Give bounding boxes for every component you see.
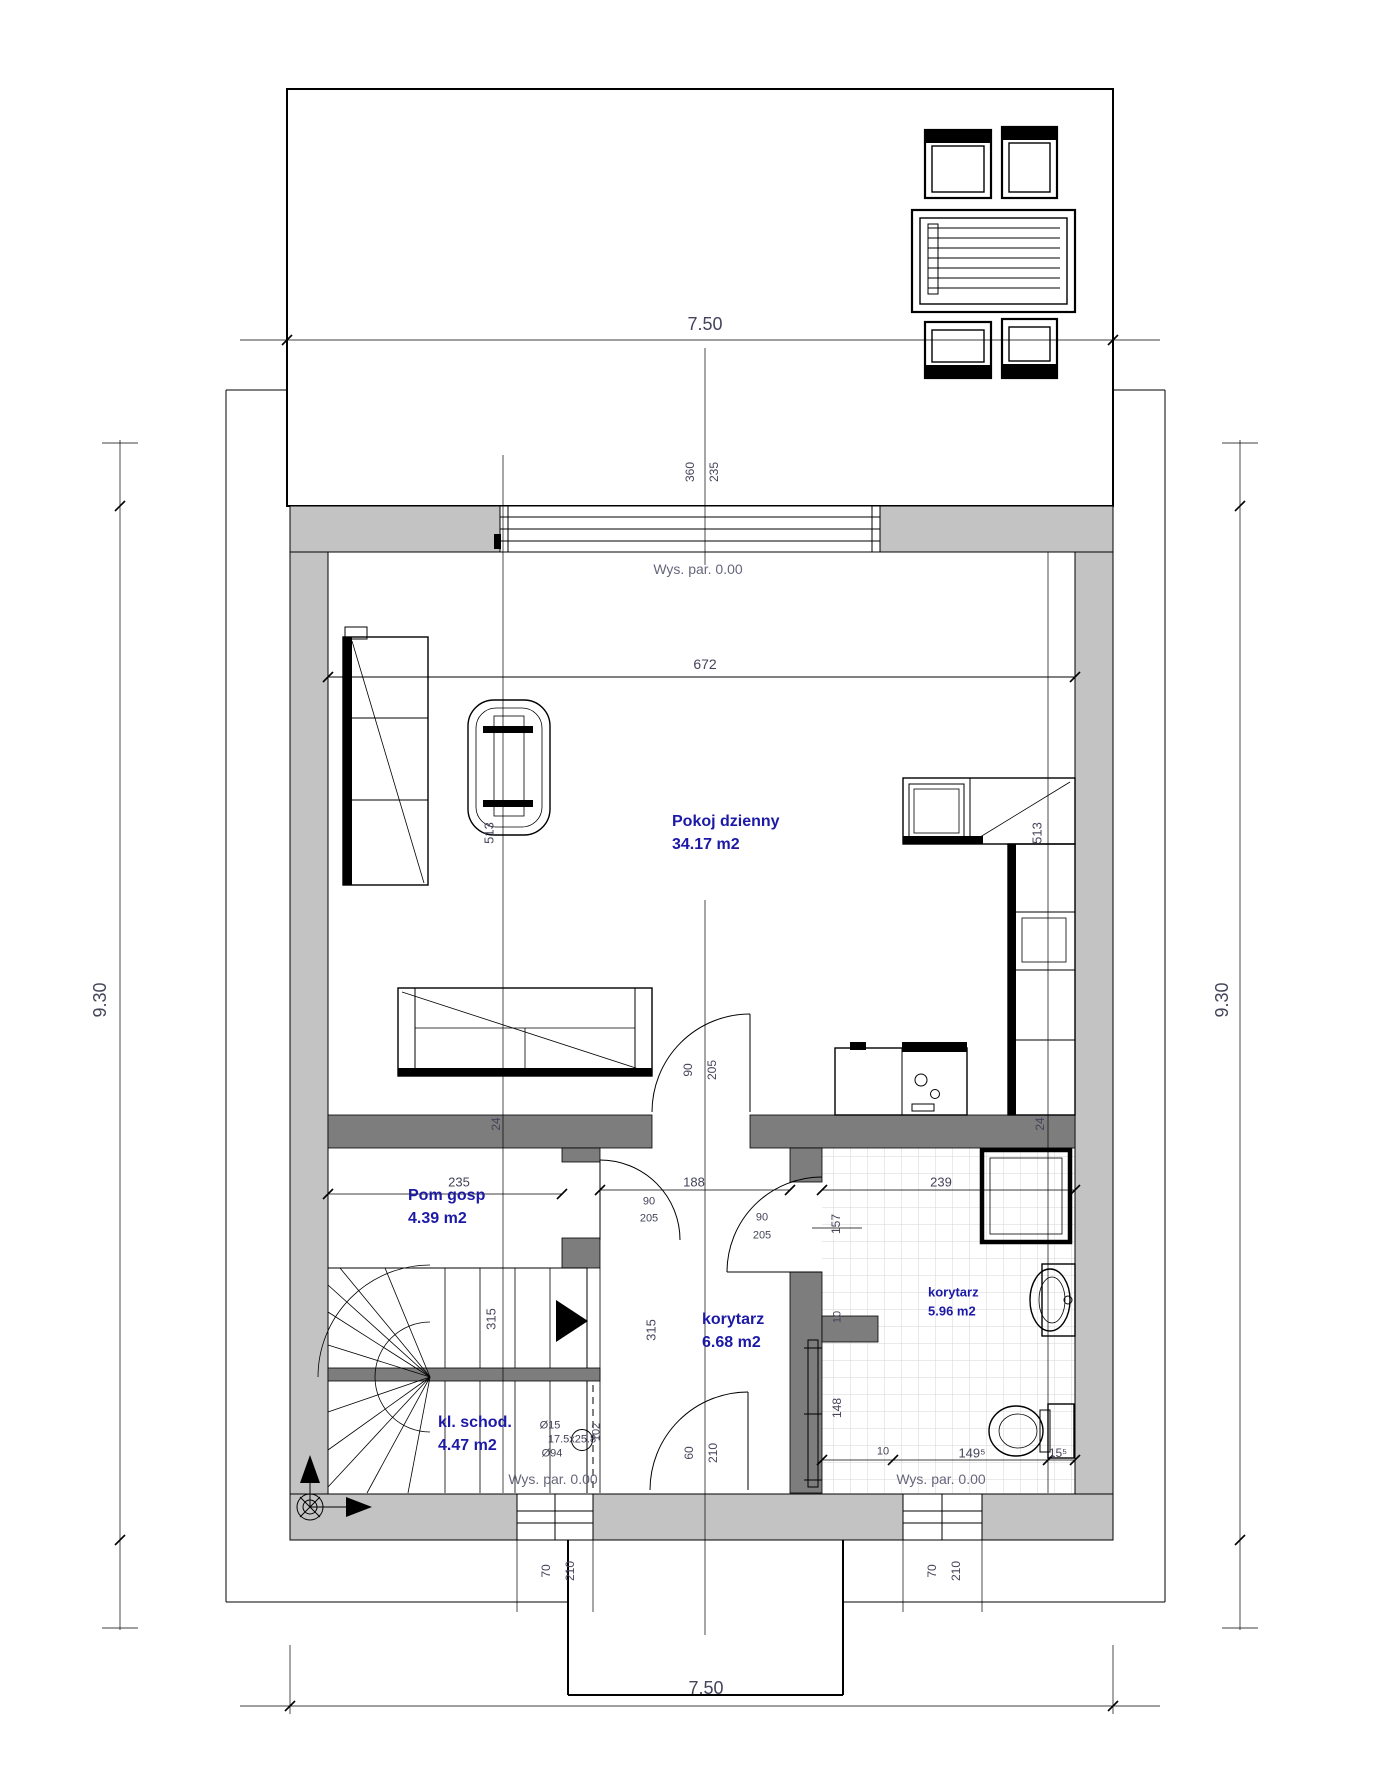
dimension-label: 7.50 [688,1679,723,1697]
dimension-label: 60 [683,1446,695,1459]
entrance-porch [568,1540,843,1695]
dimension-label: 157 [830,1214,842,1234]
door-arc [727,1177,822,1272]
room-label-name: korytarz [928,1285,979,1300]
kitchen-counter [903,778,1075,1115]
floor-plan-linework [0,0,1394,1775]
garden-chair [1002,319,1057,378]
room-label-area: 4.39 m2 [408,1210,467,1228]
dimension-label: 149⁵ [958,1447,985,1460]
door-arc [650,1392,748,1490]
dimension-label: Ø94 [542,1449,563,1460]
sofa [398,988,652,1076]
dimension-label: 15⁵ [1049,1447,1067,1459]
dimension-label: 315 [485,1308,498,1330]
dimension-label: 24 [490,1117,502,1130]
dimension-label: 90 [643,1197,655,1208]
dimension-label: 70 [540,1564,552,1577]
room-label-area: 6.68 m2 [702,1334,761,1352]
garden-chair [925,130,991,198]
level-mark: Wys. par. 0.00 [653,561,742,577]
dimension-label: 672 [693,657,716,671]
room-label-area: 5.96 m2 [928,1304,976,1319]
dimension-label: 205 [706,1060,718,1080]
dimension-label: 9.30 [91,982,109,1017]
dimension-label: 210 [564,1561,576,1581]
window [517,1494,593,1540]
dimension-label: 210 [707,1443,719,1463]
room-label-name: kl. schod. [438,1414,512,1432]
dimension-label: 513 [483,822,496,844]
floor-plan: 7.507.509.309.30360235672513513242490205… [0,0,1394,1775]
dimension-label: 210 [950,1561,962,1581]
dimension-label: 513 [1031,822,1044,844]
dimension-label: 315 [645,1319,658,1341]
dimension-label: 239 [930,1176,952,1189]
dimension-label: 10 [833,1311,844,1323]
dimension-label: 148 [831,1398,843,1418]
dimension-label: 360 [684,462,696,482]
dimension-label: 90 [682,1063,694,1076]
dimension-label: 24 [1034,1117,1046,1130]
coffee-table [468,700,550,835]
door-arc [652,1014,750,1112]
room-label-name: Pom gosp [408,1187,485,1205]
window [494,506,880,552]
room-label-name: korytarz [702,1311,764,1329]
dimension-label: 70 [926,1564,938,1577]
door-arc [600,1160,680,1240]
dimension-label: 205 [753,1231,771,1242]
level-mark: Wys. par. 0.00 [508,1471,597,1487]
dimension-label: 235 [708,462,720,482]
dimension-label: 205 [640,1214,658,1225]
room-label-area: 34.17 m2 [672,836,740,854]
dimension-label: Ø15 [540,1421,561,1432]
wardrobe [343,627,428,885]
dimension-label: 17.5x25.8 [548,1435,596,1446]
room-label-name: Pokoj dzienny [672,813,780,831]
garden-chair [925,322,991,378]
garden-chair [1002,127,1057,198]
kitchen-sink-unit [835,1042,967,1115]
window [903,1494,982,1540]
level-mark: Wys. par. 0.00 [896,1471,985,1487]
garden-table [912,210,1075,312]
terrace [287,89,1113,506]
dimension-label: 90 [756,1213,768,1224]
dimension-label: 188 [683,1176,705,1189]
room-label-area: 4.47 m2 [438,1437,497,1455]
dimension-label: 9.30 [1213,982,1231,1017]
dimension-label: 10 [877,1447,889,1458]
dimension-label: 7.50 [687,315,722,333]
